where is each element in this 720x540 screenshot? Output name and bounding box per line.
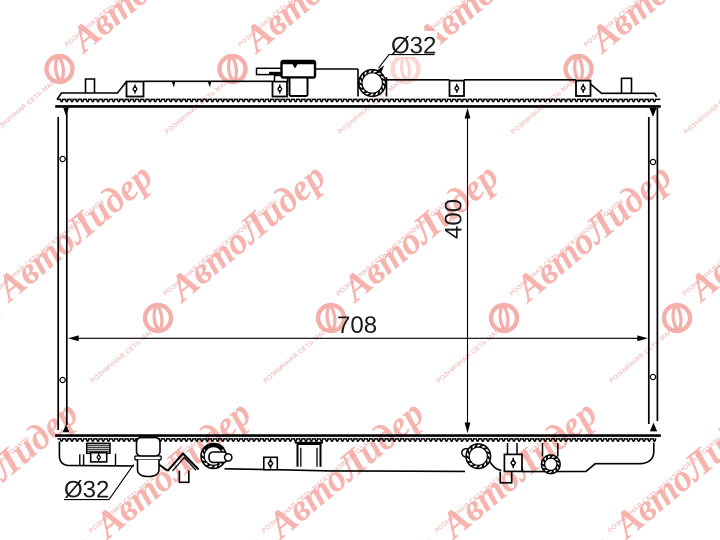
svg-text:Ø32: Ø32 [64,477,109,504]
svg-text:708: 708 [337,312,377,339]
svg-text:Ø32: Ø32 [391,33,436,60]
svg-text:400: 400 [441,199,468,239]
